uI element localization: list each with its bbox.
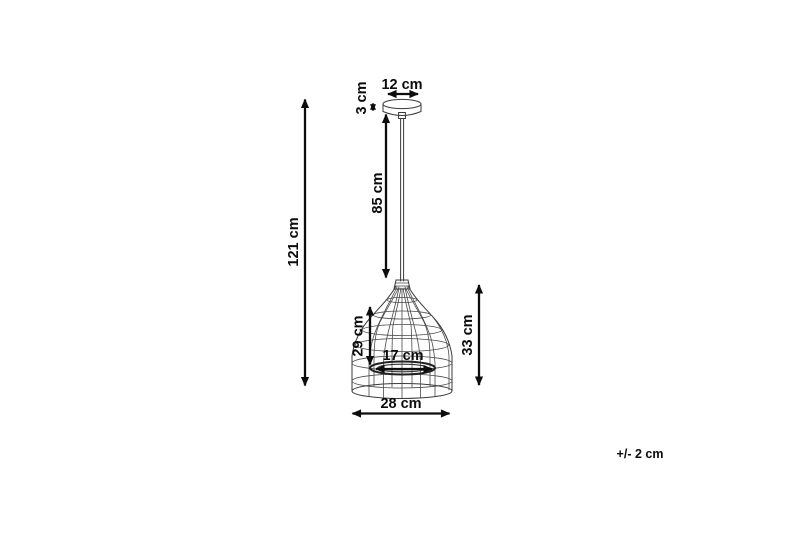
dim-cord-length: 85 cm	[370, 115, 386, 278]
dim-inner-ring-diameter-label: 17 cm	[382, 348, 423, 364]
dim-canopy-height: 3 cm	[354, 81, 373, 114]
dim-total-height: 121 cm	[286, 100, 305, 386]
dim-shade-diameter: 28 cm	[353, 396, 450, 414]
dim-total-height-label: 121 cm	[286, 217, 302, 266]
dim-cord-length-label: 85 cm	[370, 172, 386, 213]
dim-shade-inner-height-label: 29 cm	[351, 315, 367, 356]
tolerance-note: +/- 2 cm	[617, 447, 664, 461]
dim-canopy-diameter: 12 cm	[381, 77, 422, 94]
dim-shade-height: 33 cm	[460, 285, 479, 385]
dim-shade-inner-height: 29 cm	[351, 307, 371, 365]
suspension-rod	[401, 119, 404, 282]
cage-shade	[352, 280, 452, 399]
dim-shade-height-label: 33 cm	[460, 314, 476, 355]
cage-front-ribs	[369, 287, 435, 398]
dim-canopy-height-label: 3 cm	[354, 81, 370, 114]
dimension-drawing: 121 cm 12 cm 3 cm 85 cm 29 cm 17 cm	[0, 0, 800, 533]
dimension-drawing-page: 121 cm 12 cm 3 cm 85 cm 29 cm 17 cm	[0, 0, 800, 533]
ceiling-canopy	[383, 99, 421, 118]
dim-shade-diameter-label: 28 cm	[380, 396, 421, 412]
dim-canopy-diameter-label: 12 cm	[381, 77, 422, 93]
